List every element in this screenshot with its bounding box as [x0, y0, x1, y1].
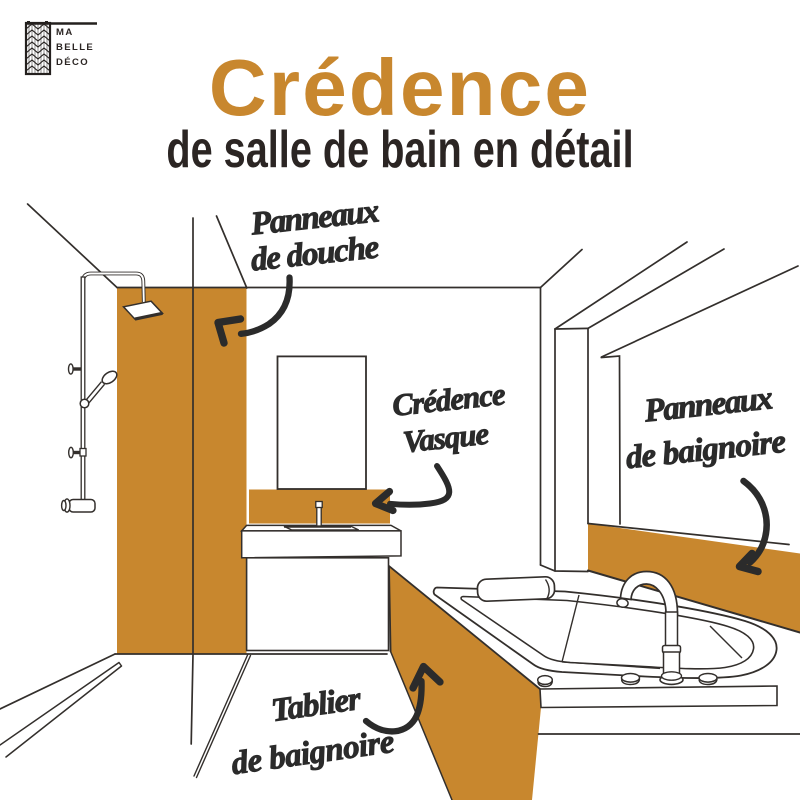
svg-text:Vasque: Vasque: [401, 416, 491, 460]
svg-text:Panneaux: Panneaux: [642, 380, 774, 429]
svg-text:de baignoire: de baignoire: [624, 424, 787, 477]
svg-text:Tablier: Tablier: [269, 681, 364, 729]
svg-text:de baignoire: de baignoire: [229, 724, 396, 782]
svg-text:Crédence: Crédence: [391, 376, 508, 423]
